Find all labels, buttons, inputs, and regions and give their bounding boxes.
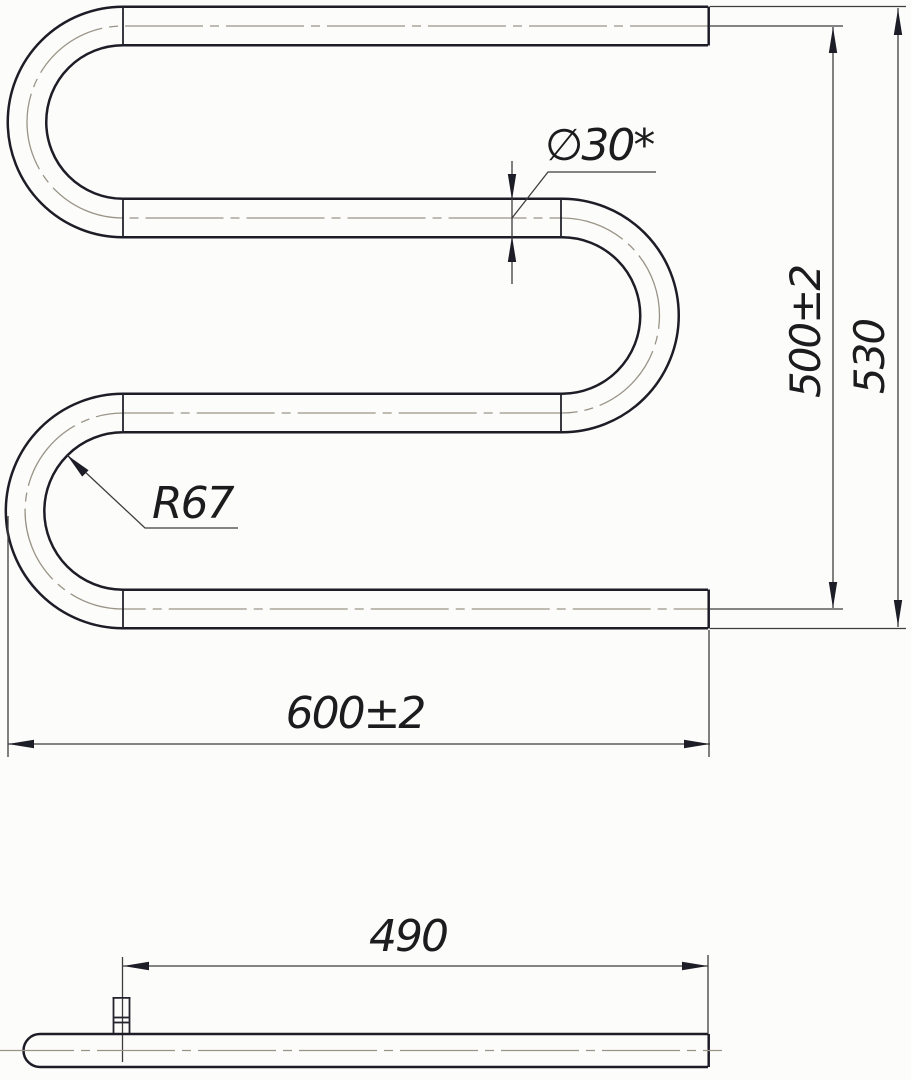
arrowhead — [829, 27, 837, 53]
arrowhead — [67, 455, 89, 477]
arrowhead — [684, 740, 710, 748]
pipe-outline — [25, 26, 708, 609]
drawing-sheet: ∅30* 500±2 530 R67 600±2 — [0, 0, 911, 1080]
arrowhead — [8, 740, 34, 748]
mount-offset-label: 490 — [369, 911, 447, 962]
arrowhead — [682, 962, 708, 970]
diameter-label: ∅30* — [545, 120, 654, 171]
dim-radius: R67 — [67, 455, 238, 529]
width-overall-label: 600±2 — [286, 688, 425, 739]
dim-width: 600±2 — [8, 516, 710, 757]
arrowhead — [894, 9, 902, 35]
arrowhead — [829, 582, 837, 608]
technical-drawing: ∅30* 500±2 530 R67 600±2 — [0, 0, 911, 1080]
dim-height-inner: 500±2 — [710, 26, 843, 609]
height-inner-label: 500±2 — [781, 266, 830, 398]
front-view — [25, 7, 709, 629]
arrowhead — [894, 600, 902, 626]
pipe-centerline — [25, 26, 708, 609]
arrowhead — [123, 962, 149, 970]
arrowhead — [508, 174, 516, 200]
bottom-view — [0, 957, 722, 1067]
pipe-fill — [25, 26, 708, 609]
height-overall-label: 530 — [845, 320, 894, 394]
arrowhead — [508, 236, 516, 262]
radius-label: R67 — [152, 478, 235, 529]
mount-fitting — [113, 997, 131, 1033]
dim-mount-offset: 490 — [123, 911, 708, 1034]
